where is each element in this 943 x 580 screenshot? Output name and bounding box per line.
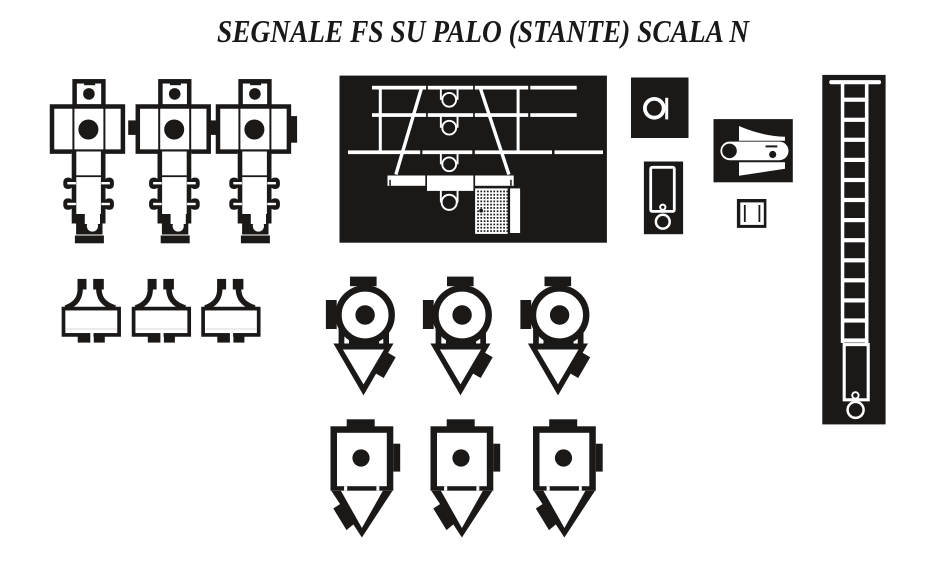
svg-text:SEGNALE FS SU PALO (STANTE) SC: SEGNALE FS SU PALO (STANTE) SCALA N — [217, 14, 750, 49]
